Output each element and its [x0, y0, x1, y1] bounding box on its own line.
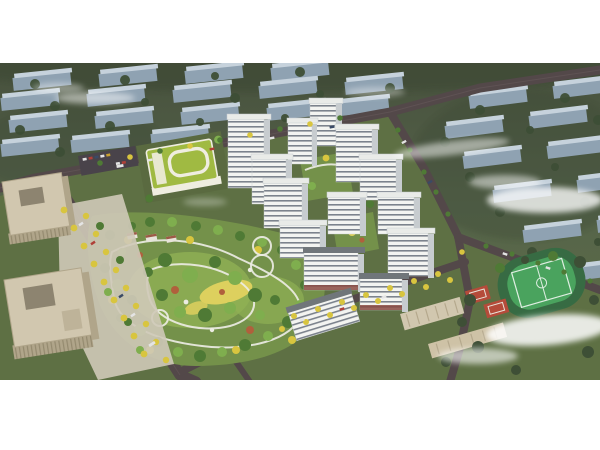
aerial-rendering-image [0, 0, 600, 450]
residential-tower [387, 228, 435, 278]
rendering-svg [0, 0, 600, 450]
cloud [345, 87, 405, 97]
cloud [55, 92, 135, 104]
residential-slab-retail [303, 247, 365, 292]
cloud [183, 198, 227, 206]
residential-tower [327, 192, 367, 236]
office-tower-2 [2, 267, 100, 360]
bottom-margin [0, 380, 600, 450]
cloud [32, 83, 84, 93]
cloud [469, 175, 541, 189]
top-margin [0, 0, 600, 63]
cloud [438, 348, 518, 364]
cloud [487, 187, 600, 213]
